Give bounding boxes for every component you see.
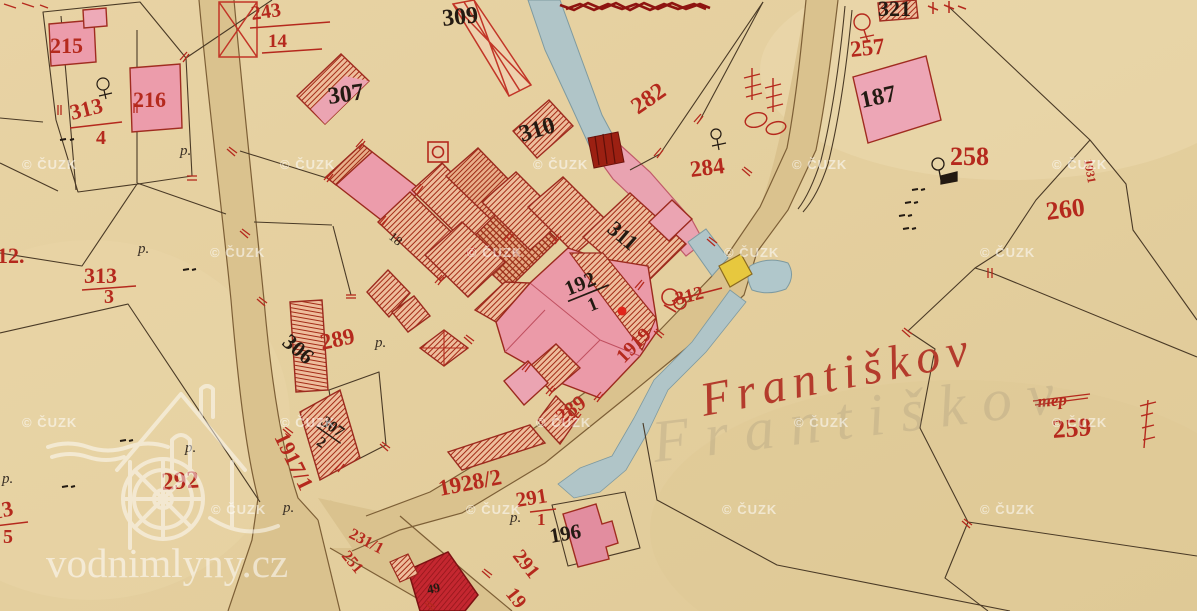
svg-text:p.: p. (137, 241, 149, 257)
svg-text:1: 1 (537, 510, 546, 529)
svg-text:© ČUZK: © ČUZK (980, 245, 1035, 260)
svg-text:4: 4 (96, 127, 106, 149)
svg-text:© ČUZK: © ČUZK (1052, 157, 1107, 172)
svg-text:© ČUZK: © ČUZK (792, 157, 847, 172)
svg-text:© ČUZK: © ČUZK (211, 502, 266, 517)
svg-text:© ČUZK: © ČUZK (533, 157, 588, 172)
svg-text:312.: 312. (0, 243, 25, 268)
svg-text:© ČUZK: © ČUZK (724, 245, 779, 260)
svg-text:© ČUZK: © ČUZK (1052, 415, 1107, 430)
svg-text:p.: p. (1, 471, 13, 487)
svg-text:258: 258 (950, 142, 989, 171)
svg-text:p.: p. (179, 143, 191, 159)
svg-text:© ČUZK: © ČUZK (280, 415, 335, 430)
svg-text:216: 216 (133, 87, 166, 112)
svg-text:vodnimlyny.cz: vodnimlyny.cz (46, 540, 288, 586)
svg-text:© ČUZK: © ČUZK (22, 157, 77, 172)
svg-text:© ČUZK: © ČUZK (467, 245, 522, 260)
svg-text:284: 284 (689, 153, 727, 182)
svg-text:14: 14 (268, 31, 288, 52)
svg-text:© ČUZK: © ČUZK (980, 502, 1035, 517)
svg-text:3: 3 (104, 286, 114, 308)
svg-text:313: 313 (84, 263, 117, 288)
svg-text:© ČUZK: © ČUZK (536, 415, 591, 430)
svg-text:© ČUZK: © ČUZK (466, 502, 521, 517)
svg-text:257: 257 (849, 34, 886, 62)
svg-text:© ČUZK: © ČUZK (22, 415, 77, 430)
svg-text:309: 309 (441, 2, 480, 32)
svg-text:© ČUZK: © ČUZK (280, 157, 335, 172)
svg-text:260: 260 (1044, 192, 1086, 226)
svg-text:215: 215 (50, 33, 83, 58)
svg-text:© ČUZK: © ČUZK (210, 245, 265, 260)
svg-text:243: 243 (250, 0, 283, 25)
svg-text:307: 307 (326, 79, 365, 110)
svg-text:321: 321 (878, 0, 911, 21)
svg-text:© ČUZK: © ČUZK (722, 502, 777, 517)
svg-text:© ČUZK: © ČUZK (794, 415, 849, 430)
svg-text:5: 5 (3, 526, 13, 548)
svg-text:p.: p. (374, 335, 386, 351)
svg-text:p.: p. (282, 500, 294, 516)
